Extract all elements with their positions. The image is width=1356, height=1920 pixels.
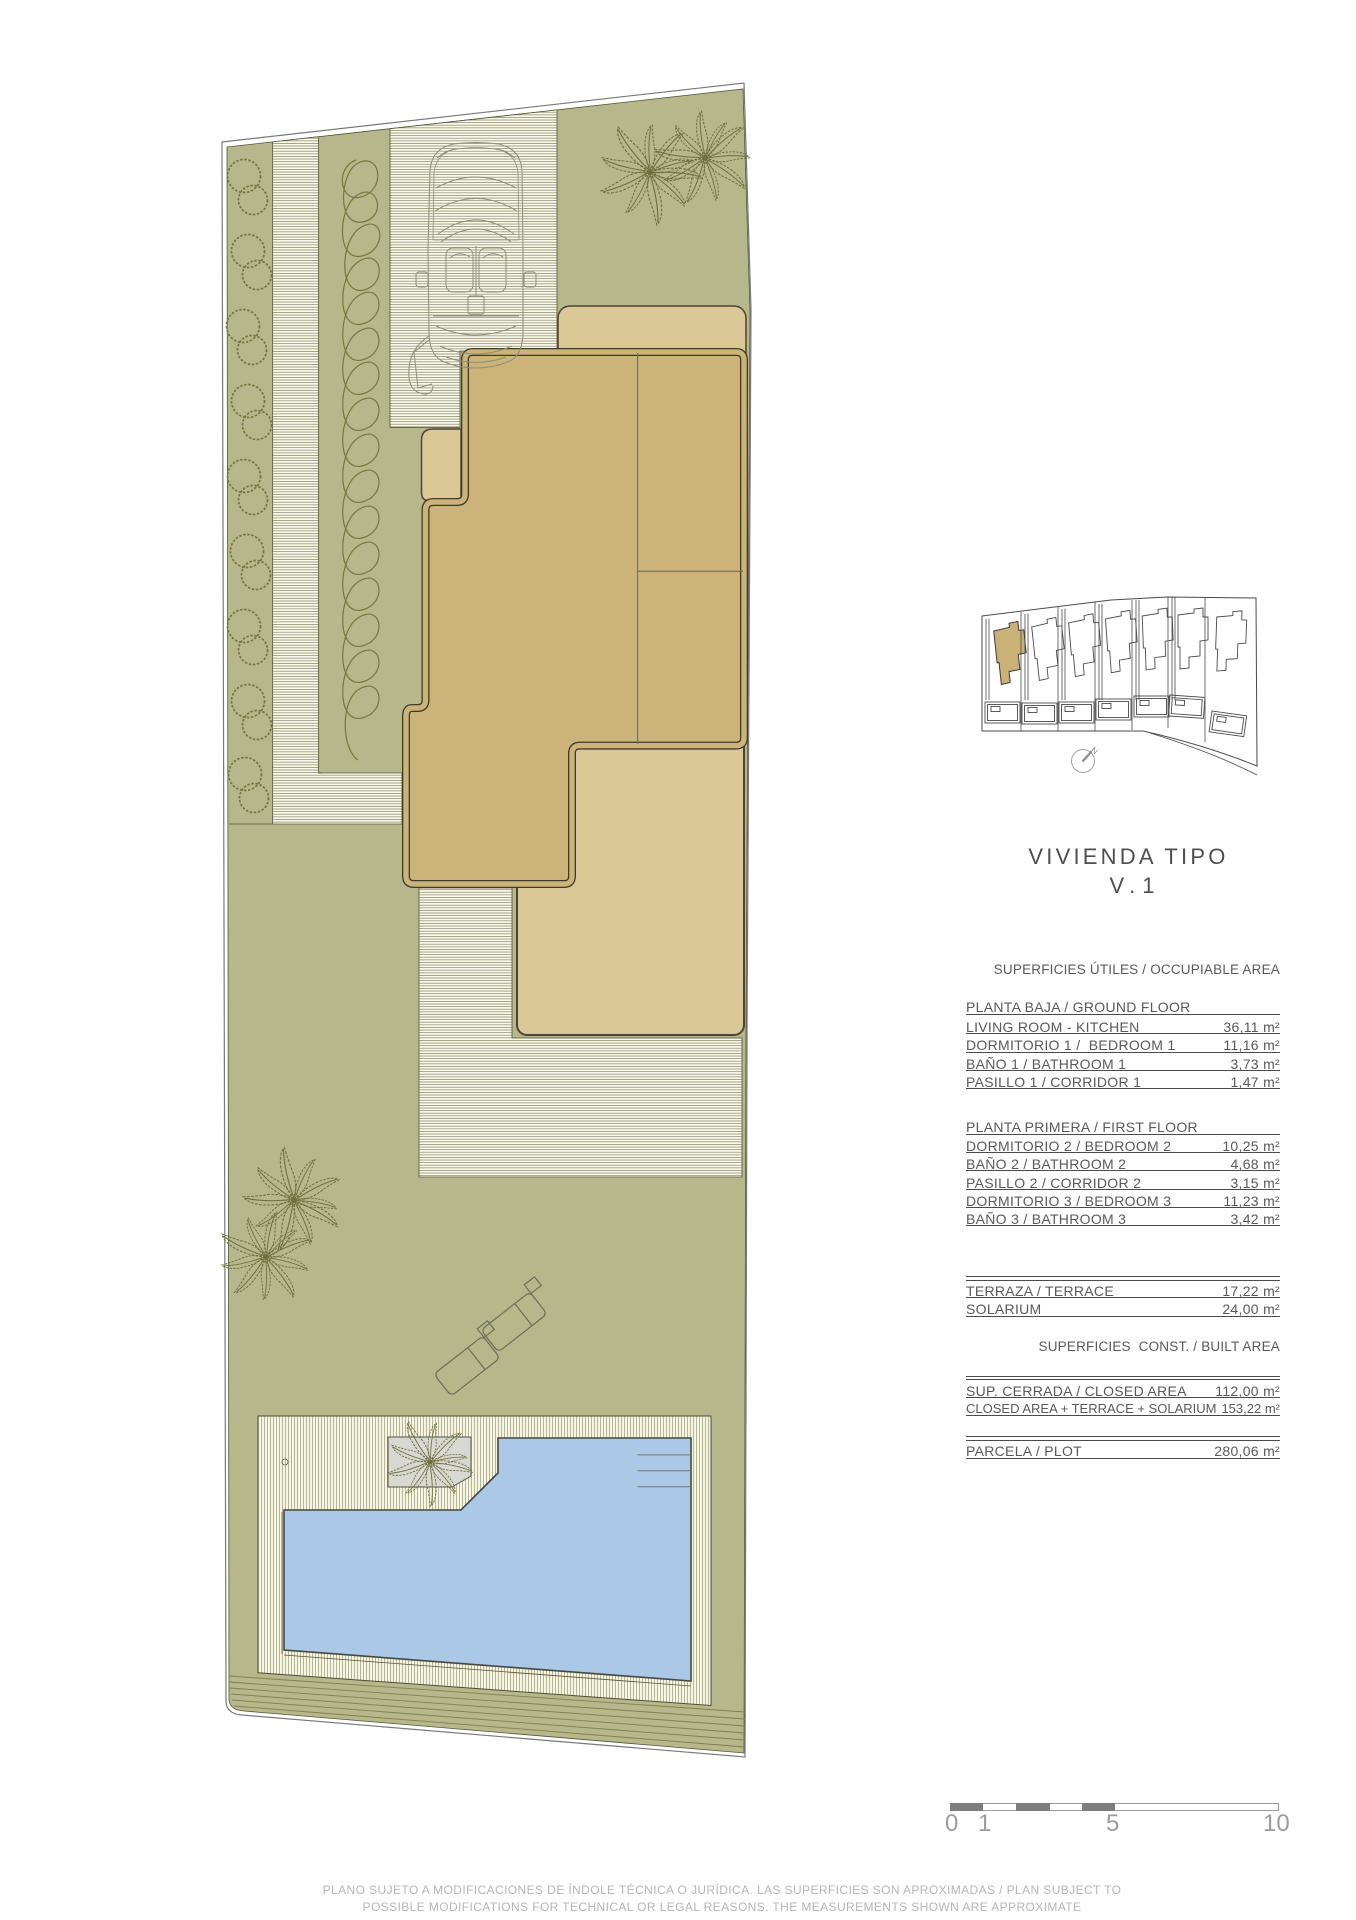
svg-text:N: N	[1089, 746, 1099, 757]
